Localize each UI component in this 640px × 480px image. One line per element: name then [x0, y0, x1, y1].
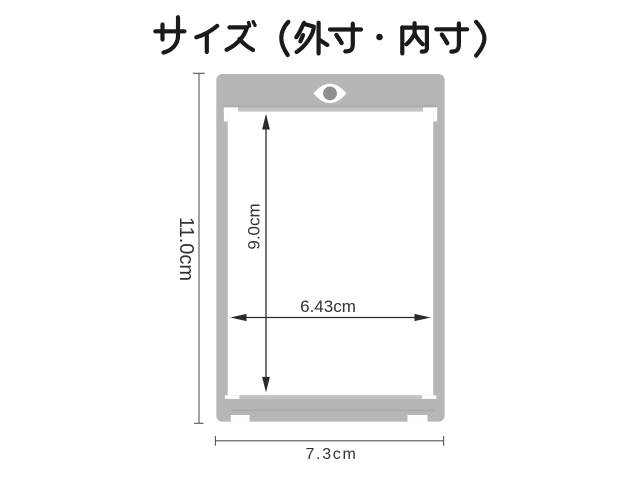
svg-text:6.43cm: 6.43cm	[300, 297, 356, 316]
svg-text:11.0cm: 11.0cm	[175, 217, 197, 281]
svg-text:9.0cm: 9.0cm	[245, 203, 264, 249]
svg-text:7.3cm: 7.3cm	[305, 446, 357, 463]
